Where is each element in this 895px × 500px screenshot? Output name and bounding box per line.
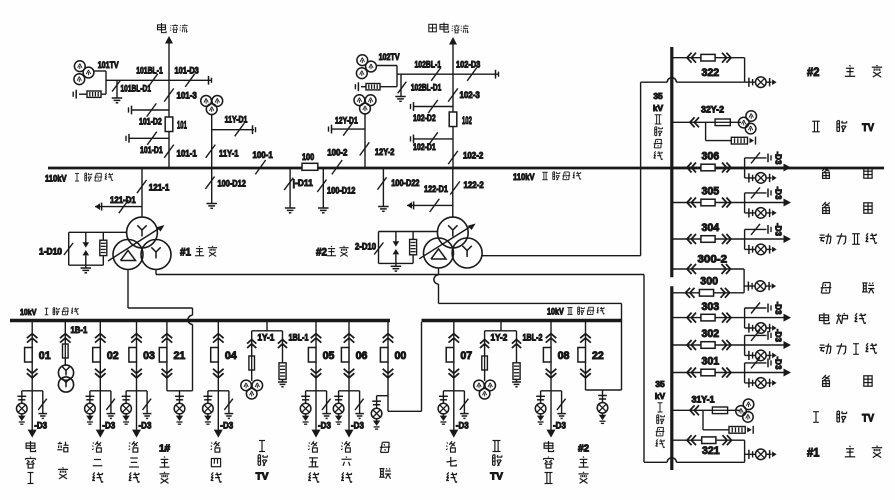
svg-text:12Y-2: 12Y-2 <box>375 147 395 157</box>
svg-text:101BL-1: 101BL-1 <box>136 66 163 76</box>
svg-text:-D3: -D3 <box>774 187 783 200</box>
svg-text:1BL-1: 1BL-1 <box>289 333 309 343</box>
svg-text:TV: TV <box>256 472 269 483</box>
svg-text:|-D11: |-D11 <box>293 178 313 188</box>
svg-text:31Y-1: 31Y-1 <box>692 395 715 405</box>
svg-text:306: 306 <box>702 151 720 163</box>
svg-text:11Y-D1: 11Y-D1 <box>225 115 248 125</box>
svg-text:10kV: 10kV <box>547 307 564 317</box>
svg-text:100: 100 <box>302 152 314 162</box>
svg-text:303: 303 <box>702 301 720 313</box>
svg-text:1Y-1: 1Y-1 <box>258 333 275 343</box>
svg-text:321: 321 <box>702 445 720 457</box>
svg-text:35: 35 <box>655 379 665 389</box>
svg-text:-D3: -D3 <box>139 421 152 431</box>
svg-text:05: 05 <box>323 350 335 362</box>
svg-text:-D3: -D3 <box>456 421 469 431</box>
svg-text:06: 06 <box>356 350 368 362</box>
svg-text:122-D1: 122-D1 <box>424 184 448 194</box>
svg-text:08: 08 <box>558 350 570 362</box>
svg-text:101-D2: 101-D2 <box>139 117 162 127</box>
svg-text:10kV: 10kV <box>20 307 37 317</box>
svg-text:100-D12: 100-D12 <box>218 179 246 189</box>
svg-text:301: 301 <box>702 356 720 368</box>
svg-text:kV: kV <box>653 103 664 113</box>
svg-text:100-1: 100-1 <box>253 150 273 160</box>
svg-text:-D3: -D3 <box>34 421 47 431</box>
svg-text:02: 02 <box>107 350 119 362</box>
svg-text:TV: TV <box>490 472 503 483</box>
svg-text:00: 00 <box>395 350 407 362</box>
svg-text:#2: #2 <box>578 444 590 455</box>
svg-text:101TV: 101TV <box>98 60 119 70</box>
svg-text:101-1: 101-1 <box>177 149 197 159</box>
svg-text:-D3: -D3 <box>774 302 783 315</box>
svg-text:#1: #1 <box>180 247 191 259</box>
svg-text:102: 102 <box>462 115 472 127</box>
svg-text:100-D12: 100-D12 <box>327 186 355 196</box>
svg-text:-D3: -D3 <box>774 152 783 165</box>
svg-text:121-D1: 121-D1 <box>110 195 136 205</box>
svg-text:102-D2: 102-D2 <box>413 113 436 123</box>
svg-text:22: 22 <box>592 350 604 362</box>
svg-text:110kV: 110kV <box>45 174 67 184</box>
svg-text:kV: kV <box>655 391 666 401</box>
svg-text:04: 04 <box>225 350 237 362</box>
svg-text:1B-1: 1B-1 <box>71 325 88 335</box>
svg-text:-D3: -D3 <box>102 421 115 431</box>
svg-text:102-D1: 102-D1 <box>413 142 436 152</box>
svg-text:32Y-2: 32Y-2 <box>701 105 724 115</box>
svg-text:102-2: 102-2 <box>463 151 483 161</box>
svg-text:101-D1: 101-D1 <box>140 145 163 155</box>
svg-text:122-2: 122-2 <box>464 180 484 190</box>
svg-text:1BL-2: 1BL-2 <box>523 333 543 343</box>
svg-text:302: 302 <box>702 328 720 340</box>
svg-text:102BL-D1: 102BL-D1 <box>411 83 441 93</box>
svg-text:2-D10: 2-D10 <box>355 242 376 252</box>
svg-text:-D3: -D3 <box>553 421 566 431</box>
svg-text:300: 300 <box>700 276 718 288</box>
svg-text:322: 322 <box>702 67 720 79</box>
svg-text:1#: 1# <box>159 444 171 455</box>
svg-text:1Y-2: 1Y-2 <box>491 333 508 343</box>
svg-text:100-D22: 100-D22 <box>391 178 419 188</box>
svg-text:101BL-D1: 101BL-D1 <box>121 84 151 94</box>
svg-text:-D3: -D3 <box>774 223 783 236</box>
svg-text:TV: TV <box>862 122 875 134</box>
svg-text:11Y-1: 11Y-1 <box>219 149 239 159</box>
svg-text:102-D3: 102-D3 <box>456 60 480 70</box>
svg-text:21: 21 <box>174 350 186 362</box>
svg-text:#2: #2 <box>807 65 820 79</box>
svg-text:-D3: -D3 <box>318 421 331 431</box>
svg-text:01: 01 <box>39 350 51 362</box>
svg-text:03: 03 <box>143 350 155 362</box>
svg-text:121-1: 121-1 <box>149 183 170 193</box>
svg-text:-D3: -D3 <box>220 421 233 431</box>
svg-text:110kV: 110kV <box>513 172 535 182</box>
svg-text:-D3: -D3 <box>774 357 783 370</box>
svg-text:304: 304 <box>702 222 720 234</box>
svg-text:07: 07 <box>460 350 472 362</box>
svg-text:101: 101 <box>177 120 187 132</box>
svg-text:102TV: 102TV <box>379 52 400 62</box>
svg-text:305: 305 <box>702 186 720 198</box>
svg-text:TV: TV <box>862 413 875 425</box>
svg-text:101-D3: 101-D3 <box>175 66 199 76</box>
svg-text:1-D10: 1-D10 <box>39 247 62 257</box>
svg-text:-D3: -D3 <box>351 421 364 431</box>
svg-text:102BL-1: 102BL-1 <box>415 60 442 70</box>
svg-text:101-3: 101-3 <box>177 91 197 101</box>
svg-text:#2: #2 <box>316 247 327 259</box>
svg-text:#1: #1 <box>807 446 820 460</box>
svg-text:12Y-D1: 12Y-D1 <box>335 116 358 126</box>
svg-text:-D3: -D3 <box>774 329 783 342</box>
svg-text:102-3: 102-3 <box>460 90 480 100</box>
svg-text:300-2: 300-2 <box>698 254 728 266</box>
svg-text:35: 35 <box>653 91 663 101</box>
svg-text:100-2: 100-2 <box>327 148 347 158</box>
